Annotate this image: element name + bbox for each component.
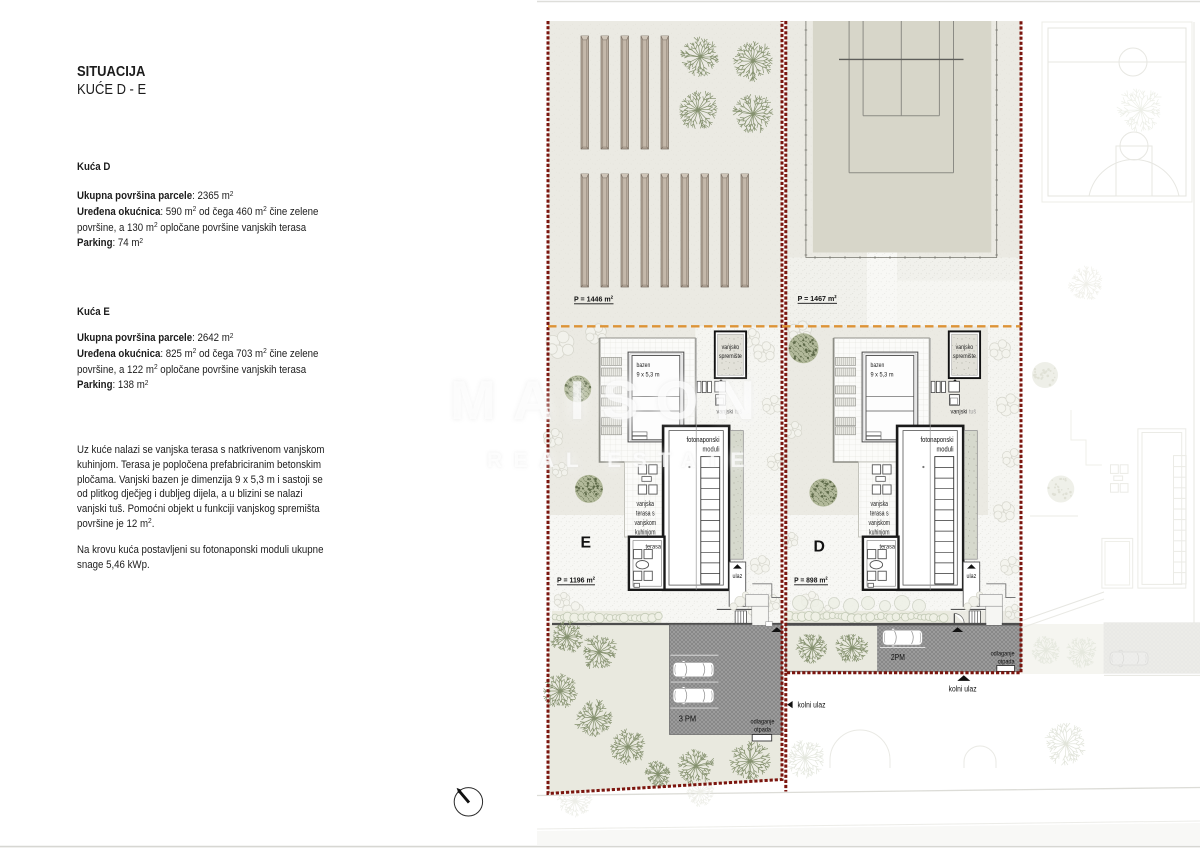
svg-text:bazen: bazen bbox=[871, 362, 885, 369]
svg-text:fotonaponski: fotonaponski bbox=[687, 436, 720, 444]
svg-text:odlaganje: odlaganje bbox=[991, 651, 1015, 658]
svg-text:terasa s: terasa s bbox=[636, 510, 655, 517]
svg-text:spremište: spremište bbox=[719, 354, 743, 360]
svg-text:vanjski tuš: vanjski tuš bbox=[951, 409, 977, 416]
svg-text:vanjsko: vanjsko bbox=[956, 345, 974, 351]
svg-text:P = 1446 m²: P = 1446 m² bbox=[574, 295, 613, 304]
svg-text:ulaz: ulaz bbox=[733, 573, 743, 580]
svg-text:P = 1196 m²: P = 1196 m² bbox=[557, 576, 595, 585]
svg-text:spremište: spremište bbox=[953, 354, 977, 360]
svg-text:kolni ulaz: kolni ulaz bbox=[949, 685, 977, 694]
svg-text:otpada: otpada bbox=[754, 727, 771, 734]
svg-text:3 PM: 3 PM bbox=[679, 715, 697, 724]
svg-text:vanjska: vanjska bbox=[637, 501, 655, 508]
svg-text:terasa s: terasa s bbox=[870, 510, 889, 517]
svg-text:2PM: 2PM bbox=[891, 653, 905, 662]
svg-text:fotonaponski: fotonaponski bbox=[921, 436, 954, 444]
svg-text:kuhinjom: kuhinjom bbox=[869, 529, 890, 536]
svg-text:P = 898 m²: P = 898 m² bbox=[794, 576, 828, 585]
svg-text:kolni ulaz: kolni ulaz bbox=[798, 701, 826, 710]
svg-text:otpada: otpada bbox=[998, 659, 1015, 666]
svg-text:vanjsko: vanjsko bbox=[722, 345, 740, 351]
svg-text:vanjskom: vanjskom bbox=[635, 520, 657, 527]
svg-text:vanjskom: vanjskom bbox=[869, 520, 891, 527]
svg-text:E: E bbox=[581, 535, 592, 552]
svg-text:9 x 5,3 m: 9 x 5,3 m bbox=[871, 372, 894, 379]
svg-text:vanjska: vanjska bbox=[871, 501, 889, 508]
svg-text:D: D bbox=[814, 539, 825, 556]
svg-text:moduli: moduli bbox=[937, 445, 954, 453]
svg-text:kuhinjom: kuhinjom bbox=[635, 529, 656, 536]
svg-text:P = 1467 m²: P = 1467 m² bbox=[798, 294, 837, 303]
svg-text:odlaganje: odlaganje bbox=[751, 719, 775, 726]
svg-text:ulaz: ulaz bbox=[967, 573, 977, 580]
